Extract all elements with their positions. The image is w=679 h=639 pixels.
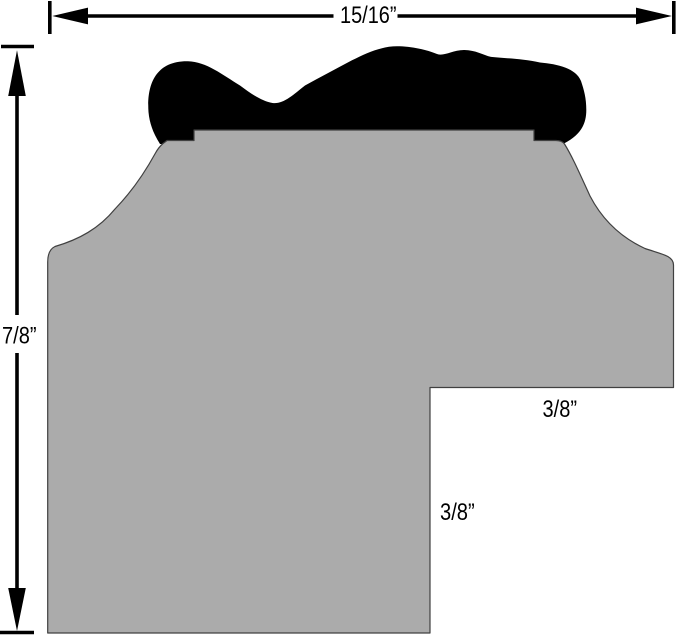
svg-text:3/8”: 3/8” <box>543 396 578 423</box>
svg-text:15/16”: 15/16” <box>340 2 397 29</box>
svg-text:7/8”: 7/8” <box>2 323 37 350</box>
svg-text:3/8”: 3/8” <box>440 499 475 526</box>
